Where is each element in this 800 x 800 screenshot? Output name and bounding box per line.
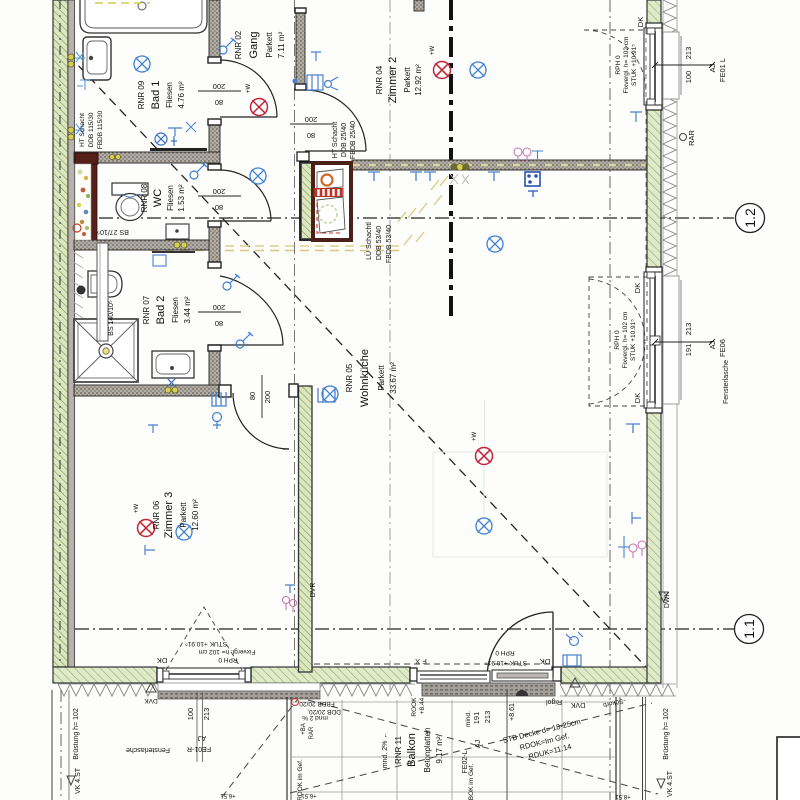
svg-text:WC: WC	[152, 189, 164, 207]
svg-text:FBDB 115/30: FBDB 115/30	[97, 110, 104, 149]
svg-text:FBDB 53/40: FBDB 53/40	[386, 225, 393, 263]
svg-text:80: 80	[307, 131, 315, 140]
svg-text:1.1: 1.1	[741, 619, 757, 639]
svg-text:RNR 09: RNR 09	[137, 80, 146, 109]
svg-text:FBDB 25/40: FBDB 25/40	[350, 121, 357, 159]
svg-text:213: 213	[684, 323, 693, 336]
svg-text:200: 200	[213, 187, 226, 196]
svg-text:HT Schacht: HT Schacht	[79, 113, 86, 147]
svg-text:VK 4.ST: VK 4.ST	[667, 770, 674, 797]
svg-text:AJ: AJ	[708, 63, 717, 72]
svg-text:Balkon: Balkon	[406, 733, 418, 767]
svg-text:1.53 m²: 1.53 m²	[177, 184, 186, 211]
svg-text:80: 80	[215, 203, 223, 212]
svg-text:200: 200	[213, 303, 226, 312]
svg-text:+6.51: +6.51	[220, 792, 236, 798]
svg-text:RPH 0: RPH 0	[495, 649, 515, 656]
svg-text:DDB 25/40: DDB 25/40	[341, 123, 348, 157]
svg-text:Fliesen: Fliesen	[165, 82, 174, 108]
svg-text:RNR 04: RNR 04	[375, 65, 384, 94]
svg-text:RNR 11: RNR 11	[394, 736, 403, 764]
svg-text:Parkett: Parkett	[265, 32, 274, 58]
svg-text:Fixvergl. h= 102 cm: Fixvergl. h= 102 cm	[623, 37, 630, 94]
svg-text:RAR: RAR	[687, 130, 696, 146]
svg-text:RNR 08: RNR 08	[140, 183, 149, 212]
svg-text:RAR: RAR	[309, 726, 315, 739]
svg-text:100: 100	[186, 708, 195, 721]
svg-text:4.76 m²: 4.76 m²	[177, 81, 186, 108]
svg-text:BS 140/10⁵: BS 140/10⁵	[108, 300, 115, 336]
svg-text:+W: +W	[246, 83, 252, 93]
svg-text:+W: +W	[134, 503, 140, 513]
svg-text:RNR 02: RNR 02	[234, 30, 243, 59]
svg-text:RPH 0: RPH 0	[614, 330, 621, 350]
svg-text:Zimmer 2: Zimmer 2	[387, 57, 399, 103]
svg-text:DDB 20/20,: DDB 20/20,	[307, 708, 341, 715]
svg-text:200: 200	[305, 115, 318, 124]
svg-text:RNR 05: RNR 05	[345, 363, 354, 392]
svg-text:RNR 06: RNR 06	[152, 500, 161, 529]
svg-text:80: 80	[215, 319, 223, 328]
svg-text:Fliesen: Fliesen	[171, 297, 180, 323]
svg-text:RPH 0: RPH 0	[218, 656, 238, 663]
svg-text:DVR: DVR	[310, 583, 317, 598]
svg-text:+8.44: +8.44	[419, 697, 426, 714]
svg-text:AJ: AJ	[475, 740, 482, 748]
svg-text:7.11 m²: 7.11 m²	[277, 31, 286, 58]
svg-text:AJ: AJ	[198, 734, 206, 741]
svg-text:DWK: DWK	[664, 592, 671, 609]
svg-text:213: 213	[202, 708, 211, 721]
svg-text:Fensterlasche: Fensterlasche	[126, 746, 170, 753]
svg-text:FBDB 20/20: FBDB 20/20	[299, 700, 335, 707]
svg-text:DK: DK	[540, 657, 550, 666]
svg-text:Fixvergl. h= 102 cm: Fixvergl. h= 102 cm	[622, 312, 629, 369]
svg-text:FE01-R: FE01-R	[187, 745, 211, 752]
svg-text:191: 191	[684, 344, 693, 357]
svg-text:Gang: Gang	[248, 32, 260, 59]
svg-text:HT Schacht: HT Schacht	[332, 122, 339, 158]
svg-text:Bad 2: Bad 2	[155, 296, 167, 325]
svg-text:Rigol: Rigol	[546, 698, 562, 705]
svg-text:LÜ Schachtl: LÜ Schachtl	[365, 222, 373, 260]
svg-text:DK: DK	[633, 283, 642, 293]
svg-text:+8.51: +8.51	[615, 793, 631, 799]
svg-text:80: 80	[215, 98, 223, 107]
svg-text:+8.61: +8.61	[509, 703, 516, 721]
svg-text:DK: DK	[157, 656, 167, 665]
svg-text:+6.51: +6.51	[301, 792, 317, 798]
svg-text:213: 213	[684, 47, 693, 60]
svg-text:Parkett: Parkett	[377, 365, 386, 391]
svg-text:12.92 m²: 12.92 m²	[414, 64, 423, 96]
svg-text:Fliesen: Fliesen	[166, 185, 175, 211]
svg-text:DVK: DVK	[570, 701, 585, 708]
svg-text:RNR 07: RNR 07	[142, 295, 151, 324]
svg-text:FE06: FE06	[718, 339, 727, 357]
svg-text:VK 4.ST: VK 4.ST	[75, 767, 82, 794]
svg-text:STUK +10.91⁵: STUK +10.91⁵	[630, 319, 637, 361]
svg-text:12.60 m²: 12.60 m²	[191, 499, 200, 531]
svg-text:mind.: mind.	[465, 711, 472, 727]
svg-text:100: 100	[684, 71, 693, 84]
svg-text:Brüstung h= 102: Brüstung h= 102	[73, 708, 80, 760]
svg-text:+BA: +BA	[301, 723, 307, 735]
svg-text:Zimmer 3: Zimmer 3	[163, 492, 175, 538]
svg-text:BOK im Gef.: BOK im Gef.	[468, 764, 475, 800]
svg-text:33.67 m²: 33.67 m²	[389, 362, 398, 394]
svg-text:80: 80	[248, 392, 257, 400]
svg-text:Brüstung h= 102: Brüstung h= 102	[663, 708, 670, 760]
svg-text:9.17 m²: 9.17 m²	[435, 736, 444, 763]
svg-text:RPH 0: RPH 0	[615, 55, 622, 75]
svg-text:AJ: AJ	[708, 340, 717, 349]
svg-text:DK: DK	[636, 17, 645, 27]
svg-text:200: 200	[263, 391, 272, 404]
svg-text:191: 191	[472, 712, 481, 725]
svg-text:FE01 L: FE01 L	[718, 58, 727, 82]
svg-text:+W: +W	[472, 431, 478, 441]
svg-text:BS 27/10⁵: BS 27/10⁵	[97, 228, 129, 235]
svg-text:200: 200	[213, 82, 226, 91]
svg-text:Parkett: Parkett	[403, 67, 412, 93]
svg-text:Bad 1: Bad 1	[150, 81, 162, 110]
svg-text:Fensterlasche: Fensterlasche	[723, 360, 730, 404]
svg-text:Fixvergl. h= 102 cm: Fixvergl. h= 102 cm	[199, 648, 256, 655]
svg-text:DVK: DVK	[144, 697, 158, 704]
svg-text:DDB 53/40: DDB 53/40	[376, 226, 383, 260]
svg-text:Parkett: Parkett	[179, 502, 188, 528]
svg-text:Betonplatten: Betonplatten	[423, 728, 432, 773]
svg-text:F X: F X	[415, 657, 427, 666]
svg-text:3.44 m²: 3.44 m²	[183, 296, 192, 323]
svg-text:DK: DK	[633, 393, 642, 403]
svg-text:DDB 115/30: DDB 115/30	[88, 112, 95, 147]
svg-text:STUK +10.91⁵: STUK +10.91⁵	[485, 659, 527, 666]
svg-text:+W: +W	[430, 45, 436, 55]
svg-text:ROOK: ROOK	[411, 697, 418, 717]
svg-text:STUK +10.91⁵: STUK +10.91⁵	[631, 44, 638, 86]
svg-text:213: 213	[483, 711, 492, 724]
svg-text:STUK +10.91⁵: STUK +10.91⁵	[185, 640, 227, 647]
svg-text:1.2: 1.2	[742, 208, 758, 228]
svg-text:Wohnküche: Wohnküche	[359, 349, 371, 407]
svg-text:mnd. 2% ←: mnd. 2% ←	[382, 732, 389, 769]
svg-text:mnd 2 %: mnd 2 %	[302, 714, 328, 721]
